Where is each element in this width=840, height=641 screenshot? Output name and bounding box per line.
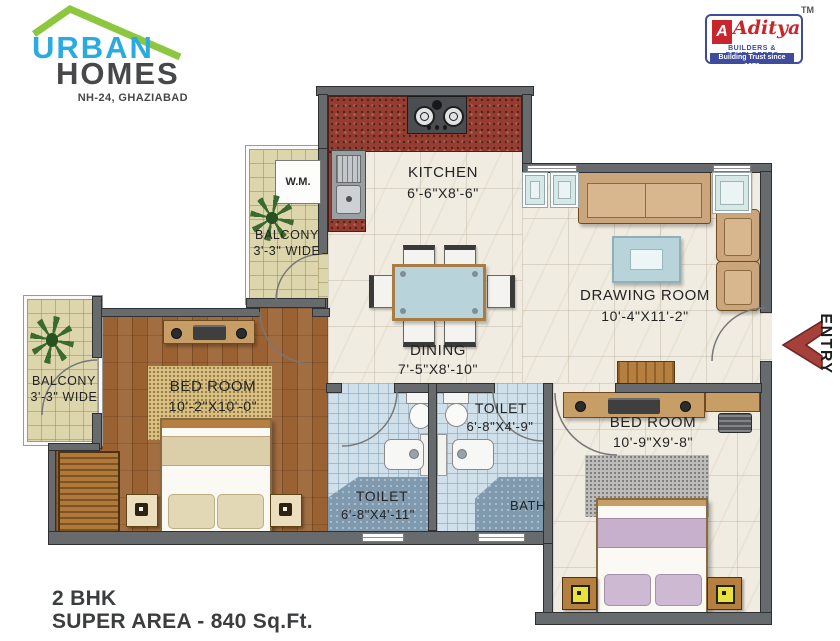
entry-threshold	[760, 313, 772, 361]
wall	[316, 86, 534, 96]
window-box	[551, 173, 578, 207]
wall	[522, 94, 532, 172]
floor-plan-page: URBAN HOMES NH-24, GHAZIABAD A Aditya BU…	[0, 0, 840, 641]
lamp-icon	[135, 503, 148, 516]
stove-knob	[443, 125, 447, 130]
burner-icon	[414, 106, 435, 127]
super-area: SUPER AREA - 840 Sq.Ft.	[52, 610, 313, 634]
wall	[48, 531, 545, 545]
washbasin	[384, 439, 424, 470]
gas-stove	[407, 96, 467, 134]
wall	[92, 296, 102, 358]
wall	[543, 543, 553, 615]
armchair	[716, 209, 760, 262]
wall	[760, 171, 772, 313]
balcony1-label: BALCONY	[250, 229, 324, 242]
nightstand	[707, 577, 742, 610]
toilet2-dims: 6'-8"X4'-9"	[448, 420, 552, 434]
stove-knob	[435, 125, 439, 130]
pillow	[217, 494, 264, 529]
bedroom2-label: BED ROOM	[593, 415, 713, 431]
window	[478, 533, 525, 542]
nightstand	[126, 494, 158, 527]
wall	[48, 443, 56, 543]
sofa	[578, 170, 711, 224]
kitchen-sink	[331, 150, 366, 220]
pillow	[168, 494, 215, 529]
drawing-room-dims: 10'-4"X11'-2"	[565, 309, 725, 324]
aditya-name: Aditya	[733, 17, 795, 43]
wall	[428, 383, 437, 531]
bedroom1-dims: 10'-2"X10'-0"	[145, 399, 281, 414]
toilet2-label: TOILET	[457, 401, 545, 416]
nightstand	[270, 494, 302, 527]
kitchen-label: KITCHEN	[383, 165, 503, 181]
desk-chair	[718, 413, 752, 433]
kitchen-dims: 6'-6"X8'-6"	[383, 186, 503, 201]
nightstand	[562, 577, 597, 610]
toilet1-label: TOILET	[337, 489, 427, 504]
desk	[705, 392, 760, 412]
burner-icon	[443, 106, 464, 127]
toilet1-dims: 6'-8"X4'-11"	[328, 508, 428, 522]
stove-knob	[427, 125, 431, 130]
window-box	[713, 173, 751, 213]
bed	[160, 418, 272, 536]
dining-dims: 7'-5"X8'-10"	[378, 362, 498, 377]
bedroom1-label: BED ROOM	[148, 379, 278, 395]
unit-type: 2 BHK	[52, 587, 117, 611]
wall	[96, 308, 260, 317]
balcony1-dims: 3'-3" WIDE	[246, 245, 328, 258]
aditya-monogram-icon: A	[712, 20, 732, 44]
bedroom2-dims: 10'-9"X9'-8"	[590, 435, 716, 450]
lamp-icon	[571, 585, 590, 604]
wall	[318, 94, 328, 150]
vanity-counter	[437, 434, 447, 476]
dining-chair	[487, 275, 515, 308]
sink-basin	[336, 185, 361, 214]
sink-drainboard	[336, 155, 361, 183]
bed	[596, 498, 708, 616]
aditya-trust-strip: Building Trust since 1979	[710, 53, 794, 62]
drawing-room-label: DRAWING ROOM	[555, 288, 735, 304]
wall	[312, 308, 330, 317]
wardrobe	[58, 451, 120, 535]
trademark-symbol: TM	[801, 5, 814, 15]
entry-label: ENTRY	[816, 299, 834, 389]
dining-label: DINING	[388, 343, 488, 359]
balcony1-door-threshold	[318, 254, 328, 298]
coffee-table	[612, 236, 681, 283]
bath-label: BATH	[496, 499, 560, 513]
wall	[48, 443, 100, 451]
wall	[246, 298, 326, 308]
window	[527, 165, 577, 172]
pillow	[655, 574, 702, 606]
logo-homes: HOMES	[56, 58, 180, 89]
lamp-icon	[279, 503, 292, 516]
plant-icon	[30, 316, 74, 364]
wall	[615, 383, 762, 393]
stove-knob	[432, 100, 442, 110]
window-box	[523, 173, 547, 207]
wall	[394, 383, 495, 393]
dining-table	[392, 264, 486, 321]
wall	[535, 612, 772, 625]
pillow	[604, 574, 651, 606]
balcony2-label: BALCONY	[27, 375, 101, 388]
logo-tagline: NH-24, GHAZIABAD	[40, 92, 188, 104]
washbasin	[452, 439, 494, 470]
aditya-logo: A Aditya BUILDERS & DEVELOPERS Building …	[705, 14, 803, 64]
window	[713, 165, 751, 172]
wall	[326, 383, 342, 393]
window	[362, 533, 404, 542]
balcony2-dims: 3'-3" WIDE	[23, 391, 105, 404]
lamp-icon	[716, 585, 735, 604]
wall	[760, 361, 772, 625]
dresser	[163, 320, 255, 344]
